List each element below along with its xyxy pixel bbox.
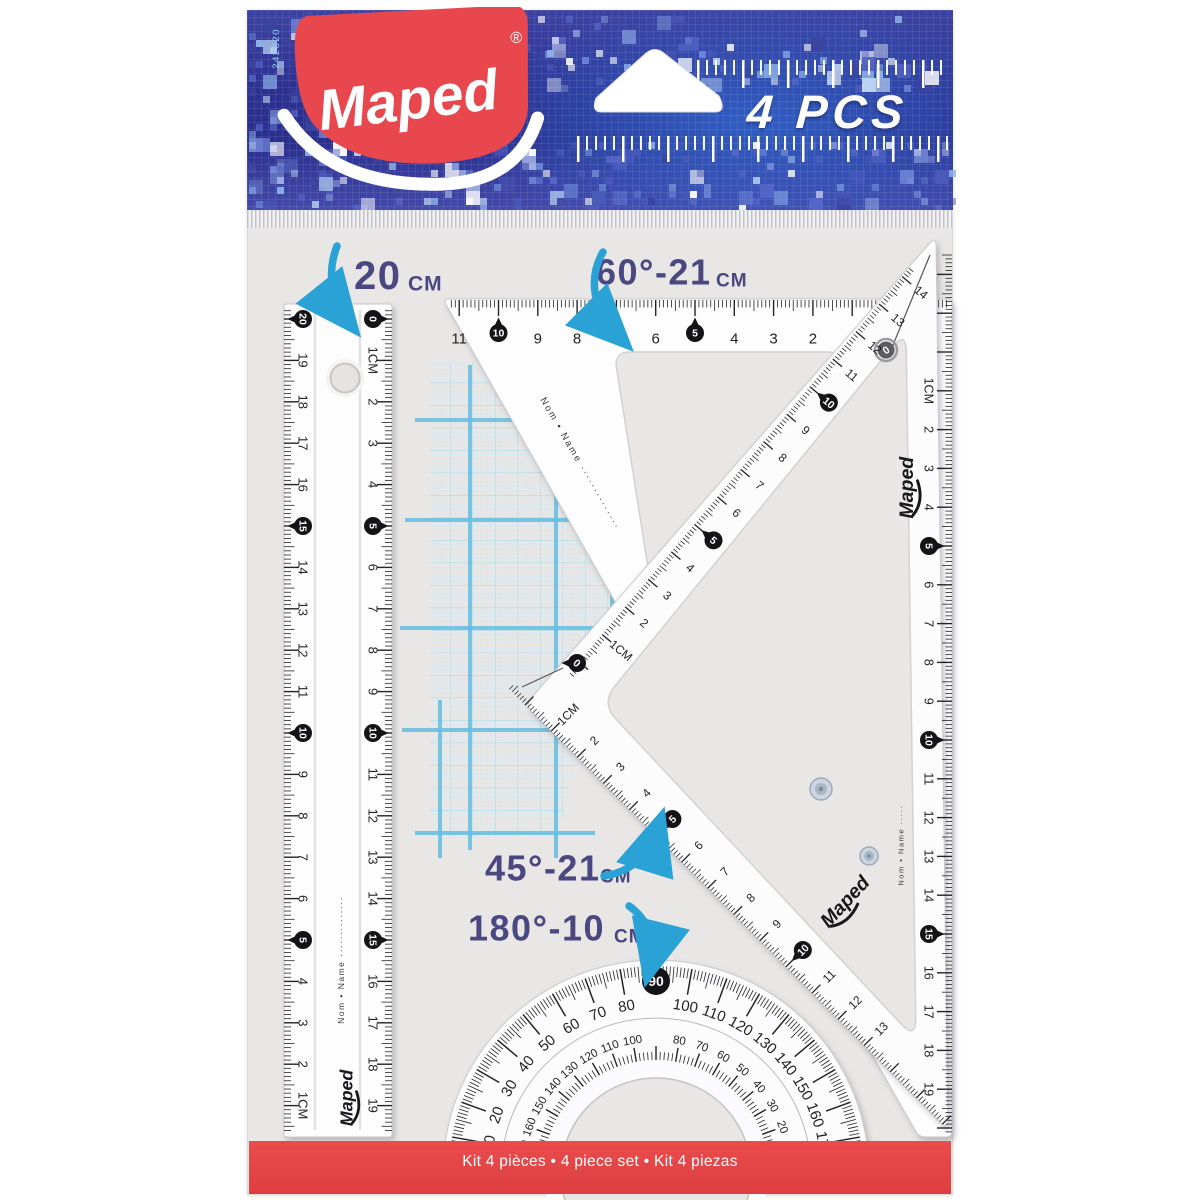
- name-line-ruler: Nom • Name ··············: [336, 896, 346, 1024]
- footer-bar: Kit 4 pièces • 4 piece set • Kit 4 pieza…: [249, 1141, 951, 1194]
- maped-brand-mark: Maped: [896, 456, 920, 519]
- callout-45-21cm: 45°-21CM: [485, 848, 632, 889]
- svg-text:180°-10: 180°-10: [468, 908, 605, 949]
- svg-text:17: 17: [295, 436, 310, 450]
- svg-text:11: 11: [365, 768, 380, 782]
- footer-text: Kit 4 pièces • 4 piece set • Kit 4 pieza…: [462, 1153, 738, 1194]
- svg-text:12: 12: [365, 809, 380, 823]
- svg-text:15: 15: [366, 934, 378, 946]
- svg-text:5: 5: [366, 523, 378, 529]
- callout-180-10cm: 180°-10CM: [468, 908, 646, 949]
- svg-text:6: 6: [365, 564, 380, 571]
- svg-text:17: 17: [922, 1005, 936, 1019]
- svg-text:14: 14: [922, 888, 936, 902]
- svg-text:15: 15: [922, 928, 934, 940]
- rivet: [860, 847, 878, 865]
- svg-text:18: 18: [295, 395, 310, 409]
- svg-text:3: 3: [922, 465, 936, 472]
- svg-text:3: 3: [365, 440, 380, 447]
- svg-text:1CM: 1CM: [365, 347, 380, 374]
- ruler-20cm: 1CM23456789101112131415161718192001CM234…: [284, 304, 392, 1137]
- svg-text:16: 16: [922, 966, 936, 980]
- svg-text:9: 9: [534, 330, 542, 347]
- svg-text:0: 0: [366, 316, 378, 322]
- callout-20cm: 20CM: [354, 254, 443, 298]
- svg-text:18: 18: [922, 1043, 936, 1057]
- svg-text:3: 3: [769, 330, 777, 347]
- svg-text:CM: CM: [408, 272, 443, 295]
- svg-text:2: 2: [295, 1061, 310, 1068]
- svg-text:16: 16: [365, 974, 380, 988]
- svg-text:1CM: 1CM: [922, 378, 936, 404]
- svg-text:8: 8: [295, 812, 310, 819]
- svg-text:Maped: Maped: [336, 1069, 356, 1127]
- name-line-45: Nom • Name ·····: [897, 804, 906, 885]
- svg-text:10: 10: [493, 328, 505, 340]
- svg-text:45°-21: 45°-21: [485, 848, 600, 889]
- svg-text:80: 80: [617, 997, 636, 1017]
- svg-text:Maped: Maped: [896, 456, 918, 519]
- svg-text:20: 20: [354, 254, 402, 298]
- svg-text:5: 5: [922, 543, 934, 549]
- svg-text:10: 10: [366, 727, 378, 739]
- svg-text:4: 4: [922, 504, 936, 511]
- svg-text:13: 13: [295, 602, 310, 616]
- svg-text:10: 10: [922, 734, 934, 746]
- svg-text:11: 11: [922, 772, 936, 785]
- svg-text:60°-21: 60°-21: [596, 252, 711, 293]
- svg-text:7: 7: [365, 605, 380, 612]
- svg-text:8: 8: [922, 659, 936, 666]
- callout-60-21cm: 60°-21CM: [596, 252, 748, 293]
- rivet: [810, 778, 832, 800]
- svg-text:18: 18: [365, 1057, 380, 1071]
- svg-text:7: 7: [295, 854, 310, 861]
- svg-text:12: 12: [922, 811, 936, 825]
- svg-text:16: 16: [295, 477, 310, 491]
- svg-text:9: 9: [365, 688, 380, 695]
- svg-text:4: 4: [365, 481, 380, 488]
- svg-text:14: 14: [295, 560, 310, 574]
- svg-text:15: 15: [296, 520, 308, 532]
- svg-text:2: 2: [922, 426, 936, 433]
- svg-text:2: 2: [809, 330, 817, 347]
- svg-text:8: 8: [365, 647, 380, 654]
- svg-text:7: 7: [922, 620, 936, 627]
- svg-text:80: 80: [672, 1034, 687, 1048]
- svg-text:19: 19: [365, 1098, 380, 1112]
- svg-text:CM: CM: [716, 271, 748, 292]
- svg-text:10: 10: [296, 727, 308, 739]
- svg-text:13: 13: [922, 849, 936, 863]
- svg-text:20: 20: [296, 313, 308, 325]
- svg-text:2: 2: [365, 398, 380, 405]
- svg-text:13: 13: [365, 850, 380, 864]
- svg-text:11: 11: [295, 685, 310, 699]
- instrument-scene: 1234567891011Nom • Name ··············1C…: [0, 0, 1200, 1200]
- svg-text:14: 14: [365, 891, 380, 905]
- svg-text:6: 6: [922, 581, 936, 588]
- product-photo-page: Maped ® 4 PCS 242820 1234567891011Nom • …: [0, 0, 1200, 1200]
- svg-text:90: 90: [648, 973, 664, 989]
- svg-text:11: 11: [451, 330, 467, 347]
- svg-text:6: 6: [652, 330, 660, 347]
- svg-text:8: 8: [573, 330, 581, 347]
- svg-text:4: 4: [730, 330, 738, 347]
- hang-hole: [328, 361, 363, 396]
- svg-text:9: 9: [295, 771, 310, 778]
- svg-text:19: 19: [295, 353, 310, 367]
- svg-text:17: 17: [365, 1016, 380, 1030]
- svg-text:9: 9: [922, 698, 936, 705]
- svg-text:4: 4: [295, 978, 310, 985]
- svg-text:1CM: 1CM: [295, 1092, 310, 1119]
- svg-text:19: 19: [922, 1082, 936, 1096]
- svg-text:CM: CM: [614, 927, 646, 948]
- svg-text:3: 3: [295, 1019, 310, 1026]
- svg-text:5: 5: [296, 937, 308, 943]
- svg-text:12: 12: [295, 643, 310, 657]
- svg-text:5: 5: [692, 328, 698, 340]
- maped-brand-mark: Maped: [336, 1069, 359, 1127]
- svg-text:6: 6: [295, 895, 310, 902]
